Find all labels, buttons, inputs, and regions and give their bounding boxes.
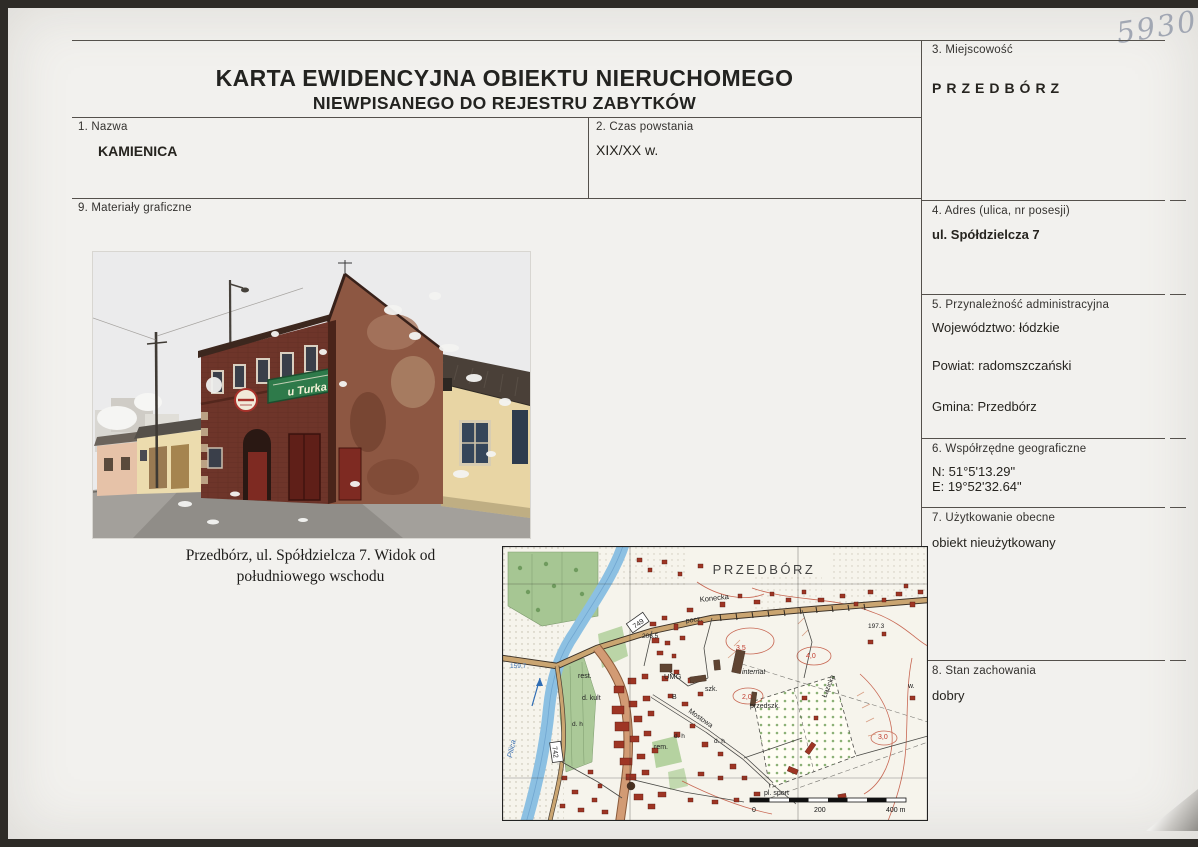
building-photo: u Turka — [93, 252, 530, 538]
scanned-record-card: 5930 KARTA EWIDENCYJNA OBIEKTU NIERUCHOM… — [0, 0, 1198, 847]
divider — [72, 198, 921, 199]
svg-text:400 m: 400 m — [886, 807, 906, 814]
card-title: KARTA EWIDENCYJNA OBIEKTU NIERUCHOMEGO — [80, 65, 929, 92]
divider — [588, 117, 589, 198]
divider — [1170, 294, 1186, 295]
field-2-value: XIX/XX w. — [596, 142, 658, 158]
field-5-value-county: Powiat: radomszczański — [932, 358, 1071, 373]
divider — [921, 507, 1165, 508]
map-label-rest: rest. — [578, 673, 592, 680]
map-label-dh1: d. h — [572, 721, 583, 728]
field-2-label: 2. Czas powstania — [596, 121, 693, 133]
field-7-value: obiekt nieużytkowany — [932, 535, 1056, 550]
map-label-przedborz: PRZEDBÓRZ — [713, 562, 816, 577]
photo-caption: Przedbórz, ul. Spółdzielcza 7. Widok od … — [128, 545, 493, 587]
field-1-label: 1. Nazwa — [78, 121, 128, 133]
site-map-illustration: 749 742 0 200 400 m PRZ — [502, 546, 928, 821]
field-3-value: PRZEDBÓRZ — [932, 80, 1064, 96]
field-6-value-n: N: 51°5'13.29" — [932, 464, 1015, 479]
divider — [1170, 438, 1186, 439]
map-label-159: 159.7 — [510, 663, 527, 670]
field-8-value: dobry — [932, 688, 965, 703]
divider — [72, 117, 921, 118]
map-label-c30: 3,0 — [878, 734, 888, 741]
field-6-value-e: E: 19°52'32.64" — [932, 479, 1022, 494]
field-7-label: 7. Użytkowanie obecne — [932, 512, 1055, 524]
field-5-label: 5. Przynależność administracyjna — [932, 299, 1109, 311]
map-label-b: B — [672, 694, 677, 701]
divider — [1170, 507, 1186, 508]
map-label-rem: rem. — [654, 744, 668, 751]
round-beer-sign — [235, 389, 257, 411]
map-label-c40: 4,0 — [806, 653, 816, 660]
map-label-dh2: d. h — [674, 733, 685, 740]
map-label-umg: UMG — [664, 672, 682, 681]
photo-caption-line2: południowego wschodu — [128, 566, 493, 587]
map-road-badge-742: 742 — [550, 741, 564, 762]
divider — [72, 40, 1165, 41]
field-4-value: ul. Spółdzielcza 7 — [932, 227, 1040, 242]
divider — [1170, 660, 1186, 661]
field-8-label: 8. Stan zachowania — [932, 665, 1036, 677]
page-curl — [1146, 789, 1198, 831]
field-5-value-commune: Gmina: Przedbórz — [932, 399, 1037, 414]
map-label-internat: internat — [742, 669, 766, 676]
divider — [921, 660, 1165, 661]
divider — [921, 200, 1165, 201]
field-9-label: 9. Materiały graficzne — [78, 202, 192, 214]
svg-text:0: 0 — [752, 807, 756, 814]
map-label-w: w. — [907, 683, 915, 690]
card-subtitle: NIEWPISANEGO DO REJESTRU ZABYTKÓW — [80, 93, 929, 114]
map-label-szk: szk. — [705, 686, 718, 693]
handwritten-number: 5930 — [1114, 4, 1198, 50]
map-label-plsport: pl. sport — [764, 790, 789, 797]
right-building-window — [459, 420, 491, 466]
building-photo-illustration: u Turka — [93, 252, 530, 538]
field-1-value: KAMIENICA — [98, 143, 177, 159]
map-label-przedszk: przedszk. — [750, 703, 780, 710]
field-4-label: 4. Adres (ulica, nr posesji) — [932, 205, 1070, 217]
field-5-value-voivodeship: Województwo: łódzkie — [932, 320, 1060, 335]
map-label-c20: 2,0 — [742, 694, 752, 701]
map-label-dkult: d. kult — [582, 695, 601, 702]
map-label-206: 206.5 — [642, 633, 659, 640]
divider — [1170, 200, 1186, 201]
map-label-dh3: d. h — [714, 738, 725, 745]
divider — [921, 294, 1165, 295]
divider — [921, 438, 1165, 439]
field-6-label: 6. Współrzędne geograficzne — [932, 443, 1086, 455]
svg-text:200: 200 — [814, 807, 826, 814]
photo-caption-line1: Przedbórz, ul. Spółdzielcza 7. Widok od — [128, 545, 493, 566]
map-label-197: 197.3 — [868, 623, 885, 630]
site-map: 749 742 0 200 400 m PRZ — [502, 546, 928, 821]
map-label-c35: 3,5 — [736, 645, 746, 652]
card-page: 5930 KARTA EWIDENCYJNA OBIEKTU NIERUCHOM… — [8, 8, 1198, 839]
field-3-label: 3. Miejscowość — [932, 44, 1013, 56]
